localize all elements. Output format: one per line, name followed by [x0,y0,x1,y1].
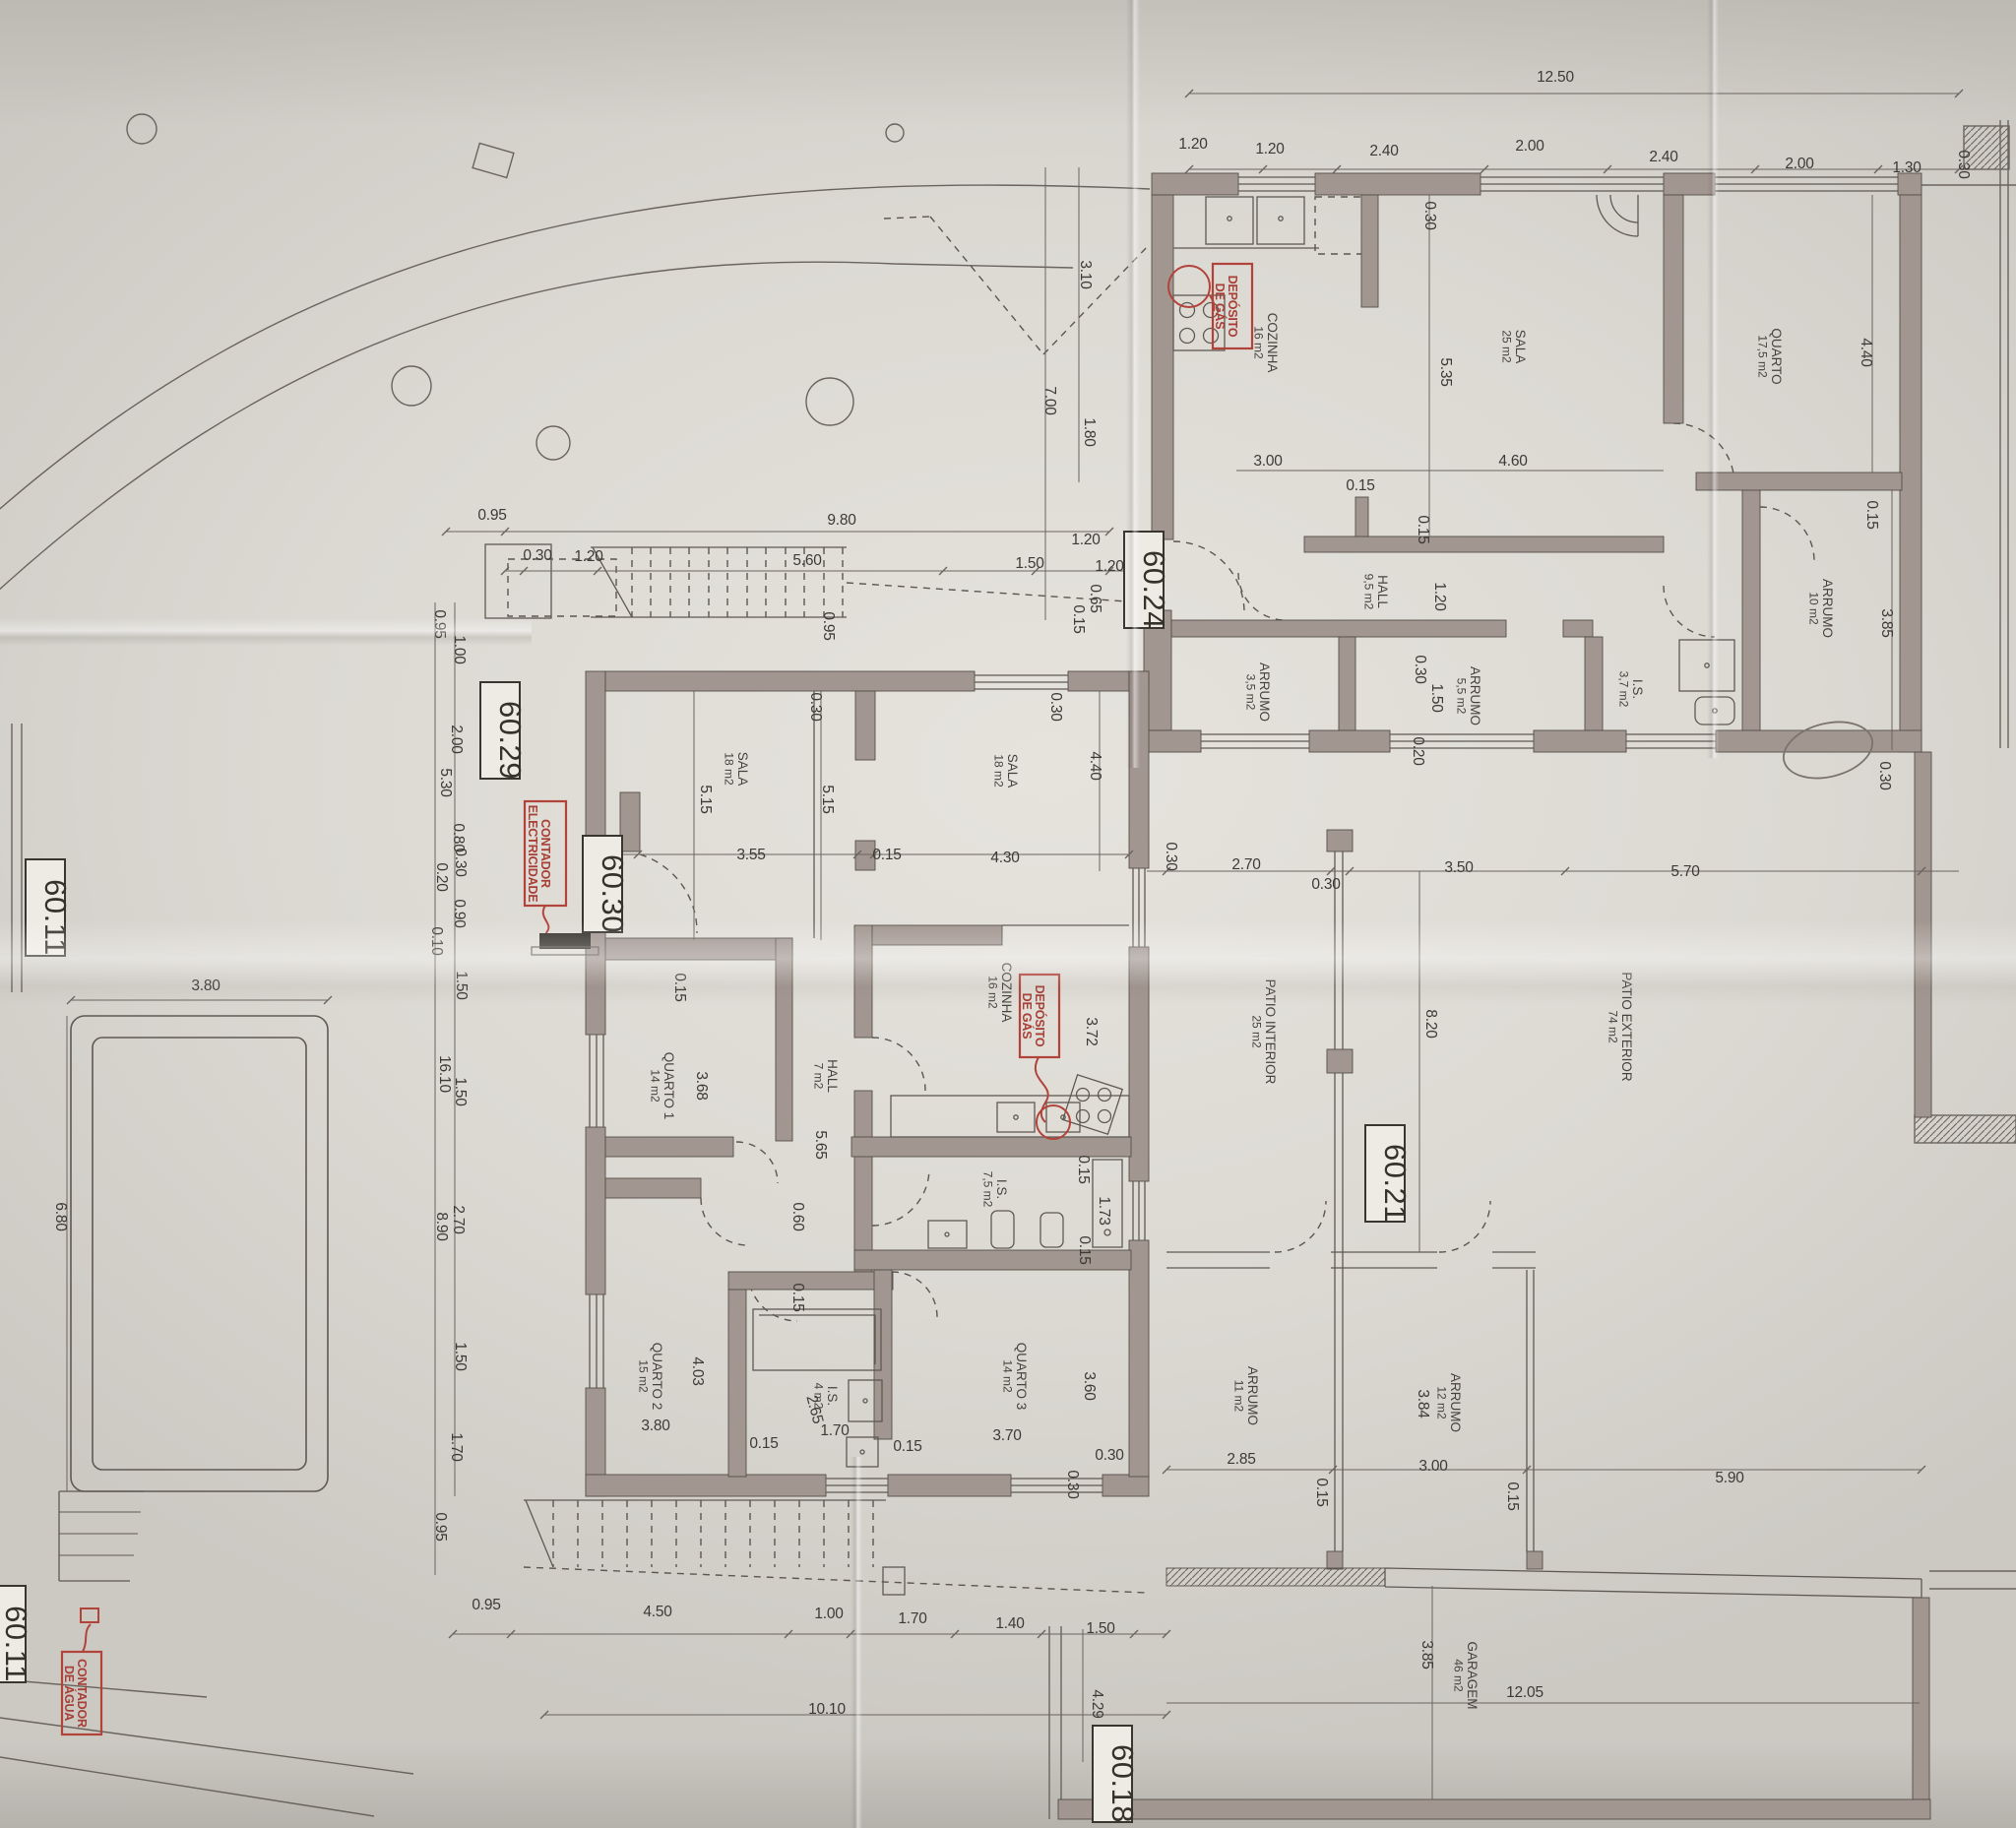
room-label: I.S.7,5 m2 [981,1171,1010,1208]
dimension-label: 0.15 [1863,500,1880,529]
dimension-label: 3.50 [1444,859,1474,876]
dimension-label: 1.20 [1255,141,1285,158]
room-label: SALA18 m2 [723,752,751,787]
dimension-label: 5.30 [437,768,454,797]
reference-marker: 60.29 [493,701,528,780]
dimension-label: 5.90 [1715,1470,1744,1486]
dimension-label: 1.00 [451,635,468,664]
dimension-label: 0.15 [1070,604,1087,633]
dimension-label: 8.90 [433,1212,450,1241]
room-label: PATIO INTERIOR25 m2 [1250,979,1279,1085]
room-label: ARRUMO3,5 m2 [1244,662,1273,722]
dimension-label: 10.10 [808,1701,846,1718]
dimension-label: 3.85 [1418,1640,1435,1669]
dimension-label: 4.30 [990,850,1020,866]
dimension-label: 8.20 [1422,1009,1439,1039]
dimension-label: 1.80 [1081,417,1098,447]
red-annotation: DEPÓSITODE GÁS [1020,985,1047,1047]
dimension-label: 0.30 [1095,1447,1124,1464]
reference-marker: 60.30 [596,854,630,933]
dimension-label: 3.84 [1415,1389,1431,1418]
dimension-label: 0.15 [1415,515,1431,543]
dimension-label: 1.70 [820,1422,850,1439]
dimension-label: 4.29 [1089,1689,1105,1718]
reference-marker: 60.11 [38,879,73,956]
room-label: ARRUMO11 m2 [1232,1366,1261,1425]
dimension-label: 2.40 [1369,143,1399,159]
dimension-label: 0.20 [1410,736,1426,766]
dimension-label: 3.85 [1878,608,1895,637]
dimension-label: 0.10 [428,926,445,956]
dimension-label: 4.03 [689,1356,706,1385]
room-label: PATIO EXTERIOR74 m2 [1606,972,1635,1082]
dimension-label: 2.85 [1227,1451,1255,1468]
dimension-label: 0.15 [671,973,688,1001]
dimension-label: 5.70 [1670,863,1700,880]
dimension-label: 1.50 [1428,683,1445,713]
dimension-label: 5.65 [812,1130,829,1159]
dimension-label: 0.90 [451,899,468,928]
room-label: QUARTO 114 m2 [649,1052,677,1120]
dimension-label: 3.00 [1253,453,1283,470]
dimension-label: 0.30 [807,692,824,722]
dimension-label: 0.65 [1087,584,1103,612]
dimension-label: 0.15 [1346,477,1374,494]
dimension-label: 0.15 [872,847,901,863]
dimension-label: 3.68 [693,1071,710,1100]
dimension-label: 0.30 [1955,150,1972,179]
dimension-label: 0.15 [893,1438,921,1455]
dimension-label: 0.30 [1047,692,1064,722]
dimension-label: 6.80 [52,1202,69,1231]
dimension-label: 4.40 [1087,751,1103,781]
dimension-label: 0.20 [433,862,450,892]
dimension-label: 1.50 [1086,1620,1115,1637]
dimension-label: 1.50 [1015,555,1044,572]
reference-marker: 60.21 [1378,1144,1413,1223]
dimension-label: 0.15 [749,1435,778,1452]
room-label: QUARTO 215 m2 [637,1343,665,1411]
reference-marker: 60.24 [1137,550,1171,629]
dimension-label: 0.30 [1311,876,1341,893]
dimension-label: 12.50 [1537,69,1574,86]
reference-marker: 60.11 [0,1606,33,1682]
gas-bottle-icon [1168,266,1210,307]
dimension-label: 1.20 [1071,532,1101,548]
walls [586,173,1931,1819]
room-label: QUARTO17,5 m2 [1756,328,1785,384]
dimension-label: 5.60 [792,552,822,569]
room-label: SALA25 m2 [1500,330,1529,364]
dimension-label: 4.50 [643,1604,672,1620]
dimension-label: 3.80 [191,977,220,994]
dimension-label: 1.20 [1178,136,1208,153]
dimension-label: 3.70 [992,1427,1022,1444]
red-annotation: DEPÓSITODE GÁS [1213,276,1240,338]
dimension-label: 0.30 [1876,761,1893,790]
dimension-label: 0.15 [1075,1155,1092,1183]
dimension-label: 1.30 [1892,159,1921,176]
dimension-label: 1.50 [452,1342,469,1371]
dimension-label: 2.40 [1649,149,1678,165]
room-label: HALL9,5 m2 [1362,574,1391,610]
dimension-label: 2.00 [1515,138,1544,155]
dimension-label: 7.00 [1041,386,1058,415]
dimension-label: 0.95 [472,1597,500,1613]
dimension-label: 0.95 [820,611,837,640]
dimension-label: 0.15 [1076,1235,1093,1264]
floor-plan-drawing: 12.501.201.202.402.002.402.001.300.303.1… [0,0,2016,1828]
dimension-label: 9.80 [827,512,856,529]
dimension-label: 2.00 [1785,156,1814,172]
pool [59,1016,328,1581]
dimension-label: 1.20 [574,548,603,565]
reference-marker: 60.18 [1105,1744,1140,1823]
dimension-label: 5.15 [819,785,836,813]
dimension-label: 16.10 [436,1055,453,1093]
dimension-label: 5.15 [697,785,714,813]
dimension-label: 2.70 [450,1205,467,1234]
room-label: COZINHA16 m2 [1252,313,1281,373]
dimension-label: 0.30 [1412,655,1428,684]
dimension-label: 0.30 [452,848,469,877]
dimension-label: 3.80 [641,1418,670,1434]
dimension-label: 2.70 [1231,856,1261,873]
dimension-label: 1.50 [452,1077,469,1106]
room-label: I.S.4 m2 [812,1383,841,1410]
dimension-label: 0.95 [431,609,448,638]
dimension-label: 0.30 [1163,842,1179,871]
dimension-label: 1.20 [1431,582,1448,611]
dimension-label: 3.00 [1418,1458,1448,1475]
dimension-label: 0.95 [477,507,506,524]
water-meter-icon [81,1608,98,1622]
dimension-label: 1.40 [995,1615,1025,1632]
dimension-label: 0.60 [789,1202,806,1231]
room-label: QUARTO 314 m2 [1001,1343,1030,1411]
dimension-label: 3.55 [736,847,765,863]
dimension-label: 4.60 [1498,453,1528,470]
dimension-label: 0.15 [789,1283,806,1311]
red-annotation: CONTADORDE ÁGUA [62,1659,89,1728]
room-label: ARRUMO10 m2 [1807,579,1836,638]
dimension-label: 0.30 [523,547,552,564]
red-annotation: CONTADORELECTRICIDADE [526,805,552,903]
dimension-label: 0.15 [1313,1478,1330,1506]
dimension-label: 1.50 [453,971,470,1000]
dimension-label: 1.00 [814,1606,844,1622]
dimension-label: 3.72 [1083,1017,1100,1045]
dimension-label: 0.95 [432,1512,449,1541]
dimension-label: 5.35 [1437,357,1454,386]
dimension-label: 4.40 [1858,338,1874,367]
dimension-label: 1.20 [1095,558,1124,575]
dimension-label: 2.00 [448,725,465,754]
dimension-label: 3.10 [1077,260,1094,289]
dimension-label: 0.30 [1421,201,1438,230]
room-label: HALL7 m2 [812,1059,841,1093]
red-annotations-layer: DEPÓSITODE GÁSDEPÓSITODE GÁSCONTADORELEC… [62,264,1252,1734]
dimension-label: 1.70 [898,1610,927,1627]
room-label: ARRUMO5,5 m2 [1455,666,1483,725]
dimension-label: 1.73 [1096,1196,1112,1225]
room-label: SALA18 m2 [992,754,1021,788]
dimension-label: 3.60 [1081,1371,1098,1401]
dimension-label: 12.05 [1506,1684,1543,1701]
reference-markers-layer: 60.2460.2960.3060.2160.1860.1160.11 [0,532,1413,1823]
room-label: ARRUMO12 m2 [1435,1373,1464,1432]
room-label: GARAGEM46 m2 [1452,1641,1480,1709]
floor-plan-sheet: 12.501.201.202.402.002.402.001.300.303.1… [0,0,2016,1828]
dimension-label: 1.70 [448,1432,465,1462]
dimension-label: 0.30 [1064,1470,1081,1499]
dimension-label: 0.15 [1504,1481,1521,1510]
room-label: COZINHA16 m2 [986,963,1015,1023]
room-label: I.S.3,7 m2 [1617,671,1646,708]
